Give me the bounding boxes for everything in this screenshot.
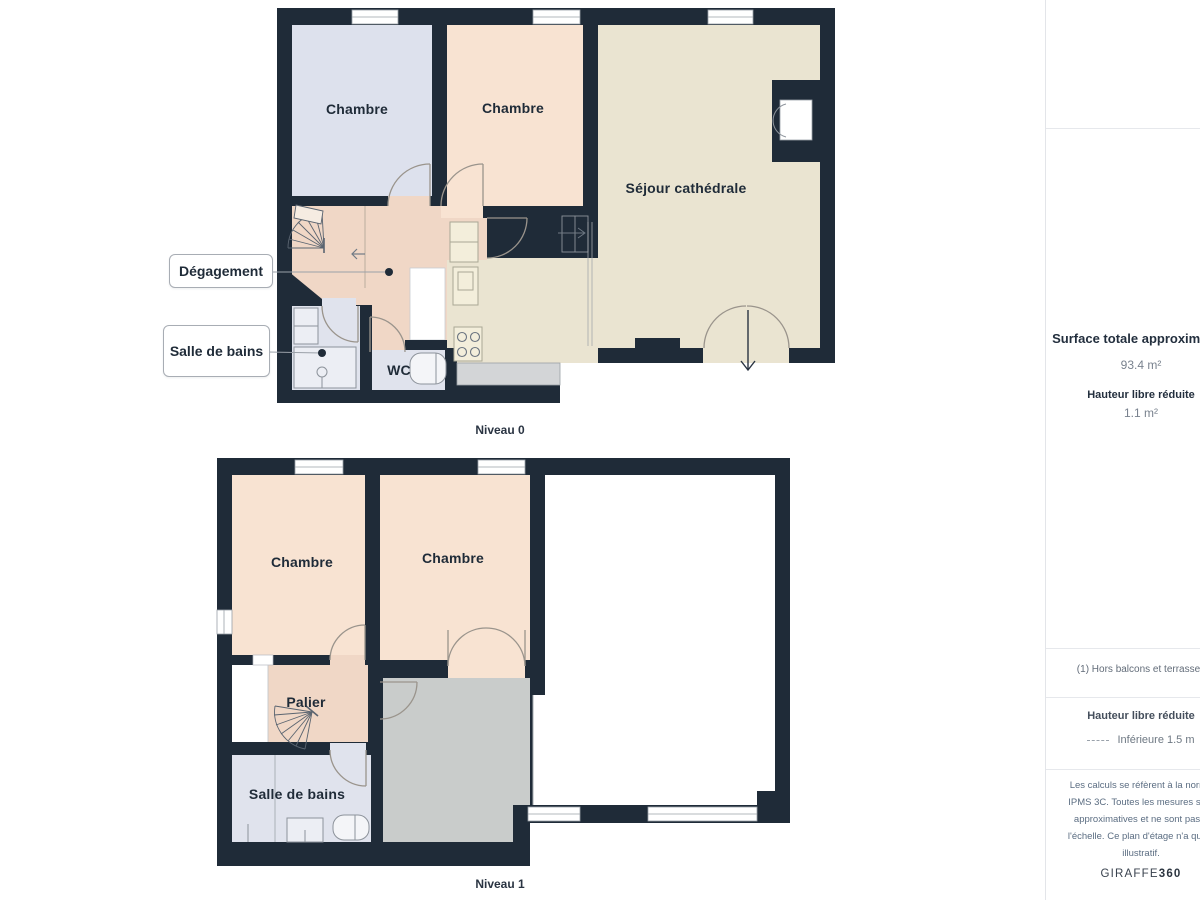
legend-reduced-height-label: Hauteur libre réduite bbox=[1046, 710, 1200, 722]
divider bbox=[1046, 769, 1200, 770]
n1-label-salle-de-bains: Salle de bains bbox=[249, 786, 345, 802]
n0-stove-burners bbox=[458, 333, 480, 357]
n0-label-chambre-1: Chambre bbox=[326, 101, 388, 117]
n0-counter bbox=[457, 363, 560, 385]
info-sidebar: Surface totale approximative 93.4 m² Hau… bbox=[1045, 0, 1200, 900]
n0-entry-arrow bbox=[741, 310, 755, 370]
n0-direction-arrow bbox=[352, 249, 365, 259]
legend-reduced-height-value: Inférieure 1.5 m bbox=[1117, 734, 1194, 746]
n0-walls bbox=[277, 8, 835, 403]
disclaimer-line: IPMS 3C. Toutes les mesures sont bbox=[1046, 794, 1200, 811]
dashed-line-icon bbox=[1087, 740, 1109, 741]
n1-label-palier: Palier bbox=[286, 694, 325, 710]
n0-window bbox=[708, 10, 753, 24]
n0-callout-leaders bbox=[268, 268, 393, 357]
brand-suffix: 360 bbox=[1159, 868, 1182, 880]
divider bbox=[1046, 697, 1200, 698]
surface-total-title: Surface totale approximative bbox=[1046, 331, 1200, 346]
reduced-height-value: 1.1 m² bbox=[1046, 406, 1200, 420]
n1-window bbox=[648, 807, 757, 821]
footnote-balconies: (1) Hors balcons et terrasses bbox=[1046, 664, 1200, 675]
n1-label-chambre-1: Chambre bbox=[271, 554, 333, 570]
n1-void bbox=[533, 475, 775, 805]
callout-degagement: Dégagement bbox=[169, 254, 273, 288]
n0-closet bbox=[410, 268, 445, 340]
n1-reduced-height-area bbox=[383, 678, 530, 842]
n0-room-bathroom bbox=[292, 306, 360, 390]
n1-window bbox=[217, 610, 232, 634]
n0-room-hallway bbox=[292, 206, 487, 350]
floorplan-page: Chambre Chambre Séjour cathédrale WC Niv… bbox=[0, 0, 1200, 900]
n0-bathroom-fixtures bbox=[294, 308, 356, 388]
n1-window bbox=[478, 460, 525, 474]
n1-caption: Niveau 1 bbox=[475, 877, 524, 891]
giraffe360-brand: GIRAFFE360 bbox=[1046, 868, 1200, 880]
n1-window bbox=[528, 807, 580, 821]
disclaimer-line: Les calculs se réfèrent à la norme bbox=[1046, 777, 1200, 794]
disclaimer-line: illustratif. bbox=[1046, 845, 1200, 862]
n0-window bbox=[352, 10, 398, 24]
n0-kitchen-fixtures bbox=[450, 222, 482, 361]
n1-bathroom-fixtures bbox=[248, 815, 369, 842]
n1-label-chambre-2: Chambre bbox=[422, 550, 484, 566]
n1-door-arcs bbox=[330, 625, 525, 786]
n0-steps-symbol bbox=[558, 216, 588, 252]
n0-wc-fixture bbox=[410, 353, 446, 384]
disclaimer-line: l'échelle. Ce plan d'étage n'a qu'un bbox=[1046, 828, 1200, 845]
n0-label-sejour: Séjour cathédrale bbox=[626, 180, 747, 196]
n0-caption: Niveau 0 bbox=[475, 423, 524, 437]
n1-room-chambre-2 bbox=[380, 475, 530, 660]
divider bbox=[1046, 648, 1200, 649]
n0-room-kitchen bbox=[447, 258, 598, 363]
n1-spiral-stairs bbox=[274, 706, 318, 749]
n0-window bbox=[533, 10, 580, 24]
n1-walls bbox=[217, 458, 790, 866]
reduced-height-title: Hauteur libre réduite bbox=[1046, 389, 1200, 401]
n0-label-wc: WC bbox=[387, 362, 411, 378]
niveau-0-plan bbox=[268, 8, 835, 403]
n0-spiral-stairs bbox=[288, 205, 324, 253]
floorplan-graphics bbox=[0, 0, 1200, 900]
niveau-1-plan bbox=[217, 458, 790, 866]
legend-reduced-height-row: Inférieure 1.5 m bbox=[1046, 734, 1200, 746]
n1-notch bbox=[232, 665, 268, 742]
n0-label-chambre-2: Chambre bbox=[482, 100, 544, 116]
n0-niche bbox=[780, 100, 812, 140]
disclaimer-line: approximatives et ne sont pas à bbox=[1046, 811, 1200, 828]
surface-total-value: 93.4 m² bbox=[1046, 358, 1200, 372]
n1-window bbox=[295, 460, 343, 474]
brand-name: GIRAFFE bbox=[1100, 868, 1158, 880]
callout-salle-de-bains: Salle de bains bbox=[163, 325, 270, 377]
divider bbox=[1046, 128, 1200, 129]
